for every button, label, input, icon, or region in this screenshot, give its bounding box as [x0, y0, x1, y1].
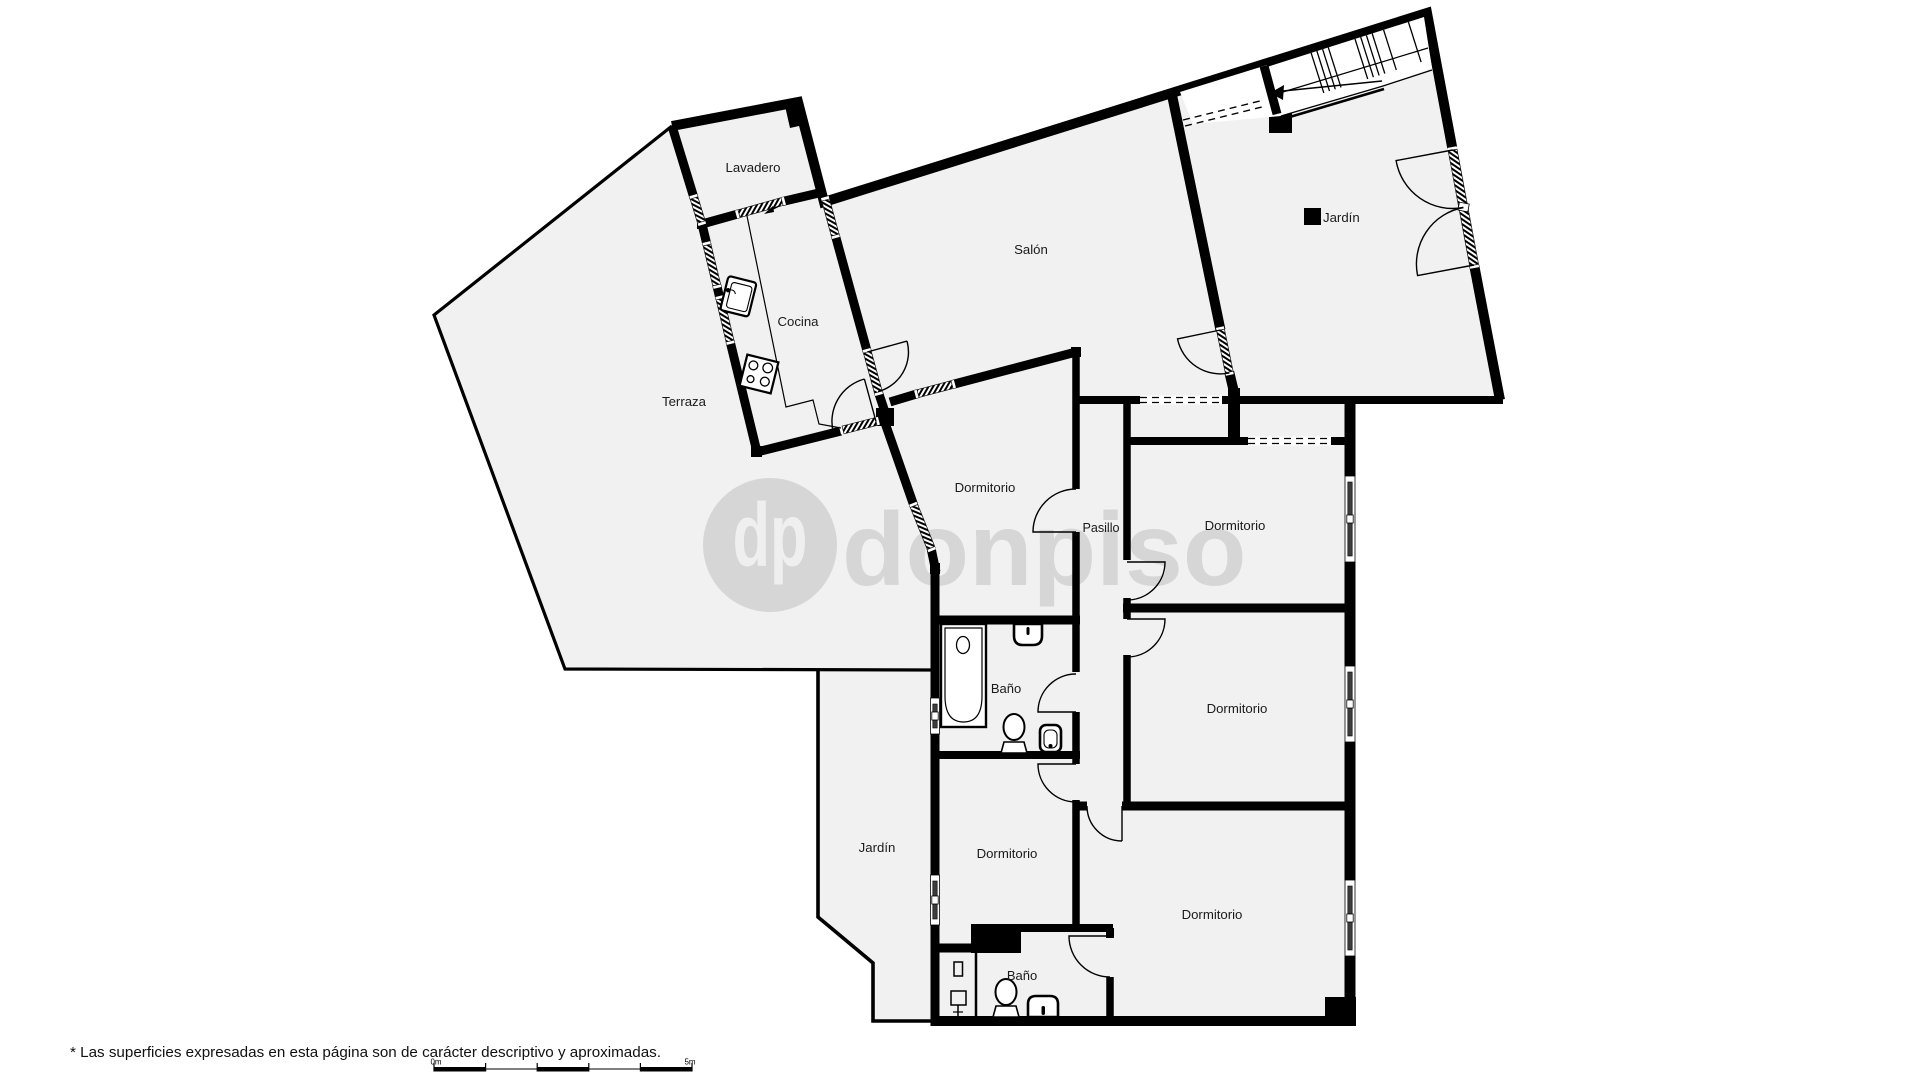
svg-text:5m: 5m	[684, 1058, 695, 1067]
svg-text:Dormitorio: Dormitorio	[977, 846, 1038, 861]
svg-text:Baño: Baño	[991, 681, 1021, 696]
svg-text:Dormitorio: Dormitorio	[955, 480, 1016, 495]
svg-text:Lavadero: Lavadero	[726, 160, 781, 175]
svg-text:donpiso: donpiso	[842, 492, 1246, 608]
svg-text:Cocina: Cocina	[777, 314, 819, 329]
svg-text:dp: dp	[733, 485, 808, 586]
svg-text:0m: 0m	[430, 1058, 441, 1067]
svg-text:Dormitorio: Dormitorio	[1182, 907, 1243, 922]
svg-text:Dormitorio: Dormitorio	[1207, 701, 1268, 716]
svg-text:Terraza: Terraza	[662, 394, 707, 409]
svg-text:Jardín: Jardín	[859, 840, 896, 855]
svg-text:* Las superficies expresadas e: * Las superficies expresadas en esta pág…	[70, 1044, 661, 1061]
svg-text:Baño: Baño	[1007, 968, 1037, 983]
svg-text:Dormitorio: Dormitorio	[1205, 518, 1266, 533]
svg-text:Jardín: Jardín	[1323, 210, 1360, 225]
svg-text:Salón: Salón	[1014, 242, 1048, 257]
svg-text:Pasillo: Pasillo	[1082, 521, 1119, 535]
